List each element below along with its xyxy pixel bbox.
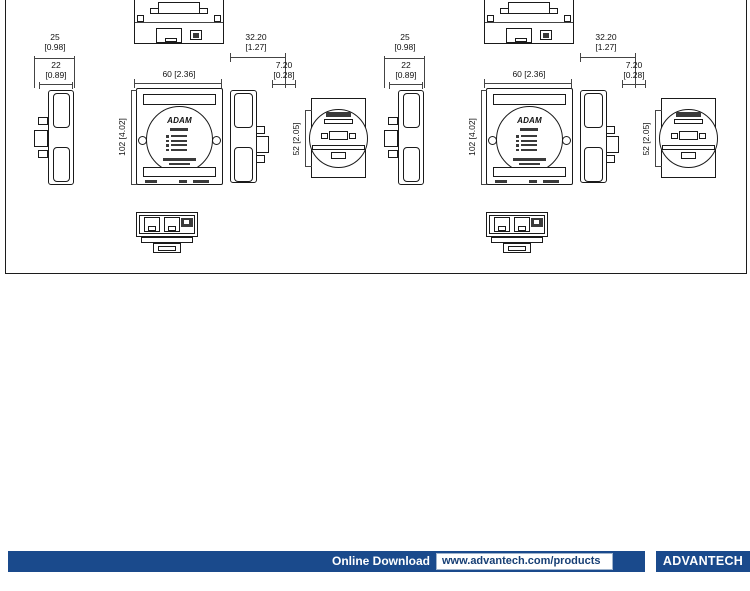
adam-logo: ADAM xyxy=(150,116,209,125)
screw xyxy=(488,136,497,145)
bottom-view xyxy=(486,212,548,254)
dim-width-front: 60 [2.36] xyxy=(134,70,224,80)
rear-view xyxy=(311,98,371,178)
adam-logo: ADAM xyxy=(500,116,559,125)
dim-depth-body: 22 [0.89] xyxy=(37,61,75,80)
front-view: ADAM xyxy=(136,88,223,185)
screw xyxy=(212,136,221,145)
mechanical-drawing-box: ADAM xyxy=(5,0,747,274)
din-clip xyxy=(38,150,48,158)
side-view-left xyxy=(34,90,76,185)
url-box: www.advantech.com/products xyxy=(436,553,613,570)
dim-height-rear: 52 [2.05] xyxy=(292,93,302,185)
advantech-logo: ADVANTECH xyxy=(656,551,750,572)
bottom-view xyxy=(136,212,198,254)
dim-height-front: 102 [4.02] xyxy=(468,91,478,183)
din-clip xyxy=(256,126,265,134)
device-drawing-set-2: ADAM xyxy=(384,0,724,273)
front-view: ADAM xyxy=(486,88,573,185)
footer-download-bar: Online Download www.advantech.com/produc… xyxy=(8,551,645,572)
side-view-left xyxy=(384,90,426,185)
dim-height-front: 102 [4.02] xyxy=(118,91,128,183)
side-view-right xyxy=(230,88,278,185)
dim-depth-side: 32.20 [1.27] xyxy=(231,33,281,52)
dim-depth-total: 25 [0.98] xyxy=(384,33,426,52)
datasheet-page: ADAM xyxy=(0,0,750,591)
din-clip xyxy=(606,126,615,134)
device-drawing-set-1: ADAM xyxy=(34,0,374,273)
din-clip xyxy=(388,117,398,125)
dim-width-front: 60 [2.36] xyxy=(484,70,574,80)
din-clip xyxy=(606,155,615,163)
din-clip xyxy=(384,130,398,147)
url-text: www.advantech.com/products xyxy=(437,554,612,569)
dim-depth-body: 22 [0.89] xyxy=(387,61,425,80)
rear-view xyxy=(661,98,721,178)
top-view xyxy=(134,0,224,44)
dim-clip-depth: 7.20 [0.28] xyxy=(262,61,306,80)
din-clip xyxy=(34,130,48,147)
top-view xyxy=(484,0,574,44)
dim-clip-depth: 7.20 [0.28] xyxy=(612,61,656,80)
dim-height-rear: 52 [2.05] xyxy=(642,93,652,185)
screw xyxy=(562,136,571,145)
din-clip xyxy=(606,136,619,153)
dim-depth-total: 25 [0.98] xyxy=(34,33,76,52)
top-vent-slot xyxy=(143,94,216,105)
side-view-right xyxy=(580,88,628,185)
din-clip xyxy=(256,155,265,163)
screw xyxy=(138,136,147,145)
online-download-label: Online Download xyxy=(332,551,430,572)
din-clip xyxy=(388,150,398,158)
dim-depth-side: 32.20 [1.27] xyxy=(581,33,631,52)
din-clip xyxy=(38,117,48,125)
top-vent-slot xyxy=(493,94,566,105)
bottom-vent-slot xyxy=(143,167,216,177)
bottom-vent-slot xyxy=(493,167,566,177)
din-clip xyxy=(256,136,269,153)
